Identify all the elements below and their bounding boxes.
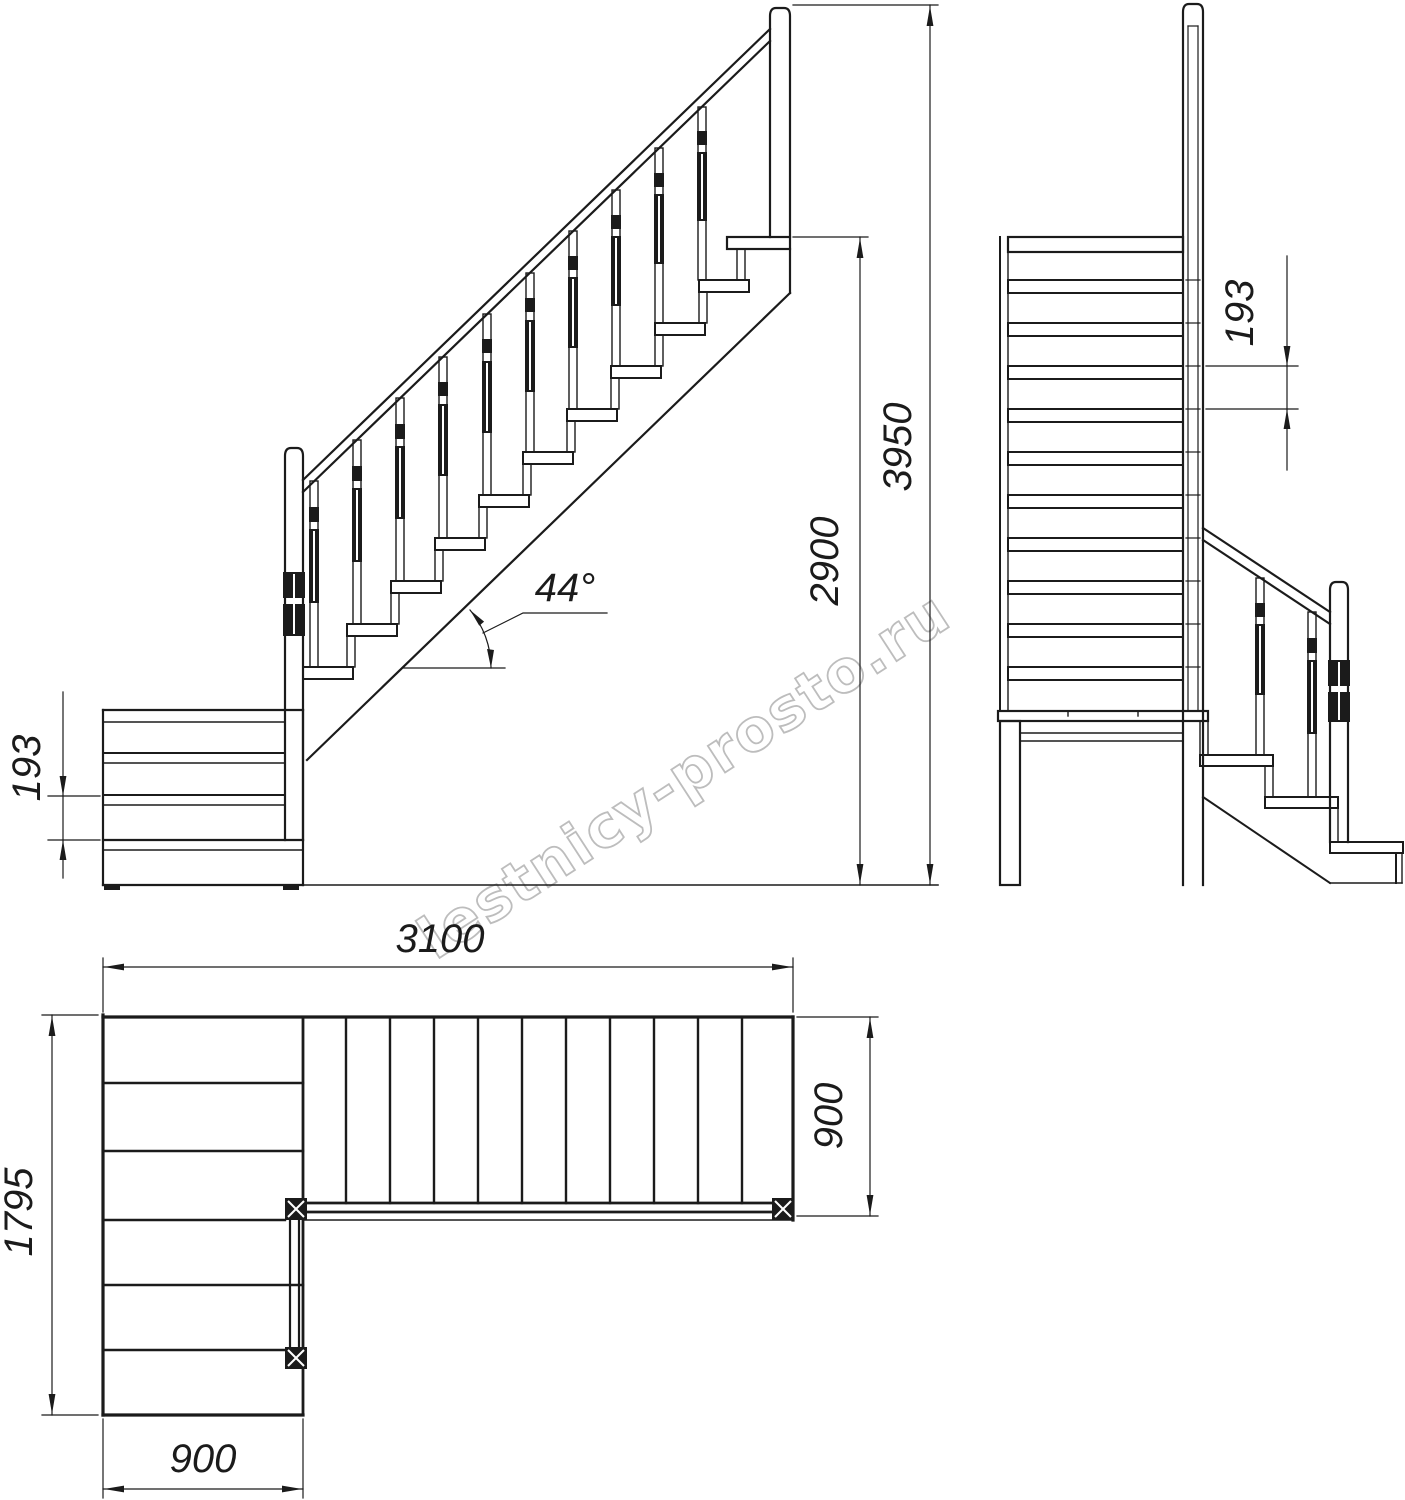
dimension-riser-front: 193 bbox=[1206, 256, 1298, 470]
dimension-label-flight-run: 3100 bbox=[396, 917, 485, 961]
dimension-label-total-height: 3950 bbox=[876, 403, 920, 492]
baluster bbox=[568, 231, 578, 409]
stringer-edge bbox=[307, 249, 790, 760]
handrail bbox=[303, 29, 770, 492]
baluster bbox=[1307, 612, 1317, 797]
dimension-label-landing-height: 2900 bbox=[803, 517, 847, 607]
dimension-total-height: 3950 bbox=[793, 5, 938, 885]
baluster bbox=[482, 314, 492, 495]
newel-post-symbol bbox=[772, 1198, 794, 1220]
balusters bbox=[309, 107, 707, 667]
plan-handrail bbox=[285, 1198, 794, 1369]
baluster bbox=[611, 190, 621, 366]
plan-lower-flight-treads bbox=[103, 1083, 303, 1350]
watermark-text: lestnicy-prosto.ru bbox=[406, 578, 962, 972]
dimension-label-flight-width: 900 bbox=[807, 1083, 851, 1150]
lower-flight-railing bbox=[1203, 528, 1350, 842]
dimension-landing-height: 2900 bbox=[793, 237, 868, 885]
dimension-flight-width: 900 bbox=[797, 1017, 878, 1216]
bottom-newel-post bbox=[283, 448, 305, 840]
dimension-label-riser-front: 193 bbox=[1218, 280, 1262, 347]
dimension-lower-flight-width: 900 bbox=[103, 1419, 303, 1498]
side-elevation-view: 193 44° 2900 3950 bbox=[5, 5, 938, 890]
baluster bbox=[438, 357, 448, 538]
landing-platform bbox=[998, 711, 1208, 885]
dimension-label-riser-left: 193 bbox=[5, 735, 49, 802]
dimension-overall-depth: 1795 bbox=[0, 1015, 98, 1415]
baluster bbox=[654, 148, 664, 323]
plan-upper-flight-treads bbox=[346, 1019, 742, 1203]
dimension-label-angle: 44° bbox=[535, 566, 596, 610]
baluster bbox=[309, 481, 319, 667]
drawing-sheet: lestnicy-prosto.ru bbox=[0, 0, 1405, 1500]
plan-outline bbox=[103, 1015, 793, 1415]
upper-flight-front bbox=[1000, 237, 1183, 711]
top-newel-post bbox=[770, 8, 790, 237]
dimension-label-lower-flight-width: 900 bbox=[170, 1437, 237, 1481]
staircase-drawing: lestnicy-prosto.ru bbox=[0, 0, 1405, 1500]
dimension-label-overall-depth: 1795 bbox=[0, 1167, 41, 1257]
baluster bbox=[1255, 578, 1265, 755]
dimension-riser-left: 193 bbox=[5, 692, 100, 878]
lower-flight-profile bbox=[1200, 721, 1403, 883]
plan-view: 3100 900 1795 900 bbox=[0, 917, 878, 1498]
lower-flight-end-view bbox=[103, 710, 303, 890]
newel-post-symbol bbox=[285, 1198, 307, 1220]
baluster bbox=[352, 440, 362, 624]
newel-post-symbol bbox=[285, 1347, 307, 1369]
baluster bbox=[395, 398, 405, 581]
front-elevation-view: 193 bbox=[998, 4, 1403, 885]
baluster bbox=[697, 107, 707, 280]
baluster bbox=[525, 273, 535, 452]
